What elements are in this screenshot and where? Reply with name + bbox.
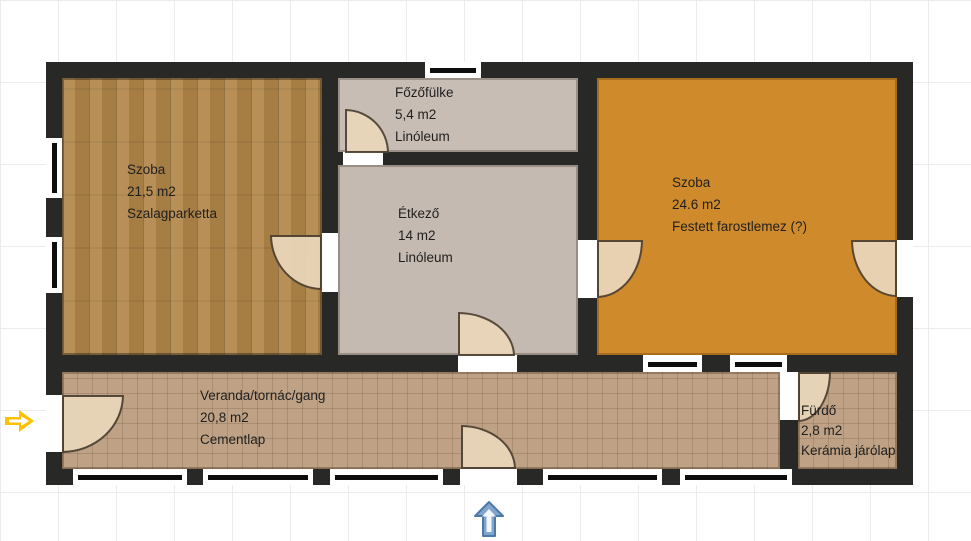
room-veranda-floor <box>62 372 780 469</box>
window-pane <box>208 475 308 480</box>
room-floor: Cementlap <box>200 429 325 451</box>
room-floor: Linóleum <box>395 126 454 148</box>
room-name: Étkező <box>398 203 453 225</box>
room-area: 21,5 m2 <box>127 181 217 203</box>
room-area: 14 m2 <box>398 225 453 247</box>
entrance-arrow-icon <box>3 406 37 436</box>
window-pane <box>335 475 438 480</box>
room-floor: Festett farostlemez (?) <box>672 216 807 238</box>
wall-szoba-left-middle <box>322 78 338 372</box>
wall-etkezo-szoba-right <box>578 78 597 372</box>
room-name: Veranda/tornác/gang <box>200 385 325 407</box>
room-area: 24.6 m2 <box>672 194 807 216</box>
window-pane <box>78 475 182 480</box>
window-pane <box>648 362 697 367</box>
door-opening-furdo <box>780 372 798 420</box>
floor-plan: Szoba 21,5 m2 Szalagparketta Főzőfülke 5… <box>0 0 971 541</box>
window-bottom-3 <box>330 469 443 485</box>
window-pane <box>430 68 476 73</box>
room-area: 20,8 m2 <box>200 407 325 429</box>
room-name: Szoba <box>672 172 807 194</box>
door-opening-right-wall <box>897 240 913 297</box>
window-left-2 <box>46 237 62 293</box>
door-opening-szoba-right <box>578 240 597 298</box>
room-floor: Kerámia járólap <box>801 441 896 461</box>
room-label-etkezo: Étkező 14 m2 Linóleum <box>398 203 453 269</box>
window-pane <box>735 362 782 367</box>
room-label-furdo: Fürdő 2,8 m2 Kerámia járólap <box>801 401 896 461</box>
window-pane <box>52 242 57 288</box>
door-opening-szoba-left <box>322 233 338 292</box>
door-opening-main-entrance <box>460 469 517 485</box>
room-area: 2,8 m2 <box>801 421 896 441</box>
window-pane <box>52 143 57 193</box>
room-label-veranda: Veranda/tornác/gang 20,8 m2 Cementlap <box>200 385 325 451</box>
window-bottom-1 <box>73 469 187 485</box>
door-opening-etkezo-veranda <box>458 355 517 372</box>
door-opening-veranda-left <box>46 395 62 452</box>
room-name: Szoba <box>127 159 217 181</box>
room-label-szoba-right: Szoba 24.6 m2 Festett farostlemez (?) <box>672 172 807 238</box>
room-label-szoba-left: Szoba 21,5 m2 Szalagparketta <box>127 159 217 225</box>
window-szoba-right-veranda-1 <box>643 355 702 372</box>
window-szoba-right-veranda-2 <box>730 355 787 372</box>
room-floor: Szalagparketta <box>127 203 217 225</box>
room-name: Fürdő <box>801 401 896 421</box>
direction-arrow-icon <box>473 500 505 538</box>
window-bottom-5 <box>680 469 792 485</box>
room-name: Főzőfülke <box>395 82 454 104</box>
window-bottom-4 <box>543 469 662 485</box>
window-bottom-2 <box>203 469 313 485</box>
door-opening-fozofulke <box>343 152 383 165</box>
window-pane <box>685 475 787 480</box>
window-top <box>425 62 481 78</box>
window-pane <box>548 475 657 480</box>
room-area: 5,4 m2 <box>395 104 454 126</box>
window-left-1 <box>46 138 62 198</box>
room-floor: Linóleum <box>398 247 453 269</box>
room-label-fozofulke: Főzőfülke 5,4 m2 Linóleum <box>395 82 454 148</box>
